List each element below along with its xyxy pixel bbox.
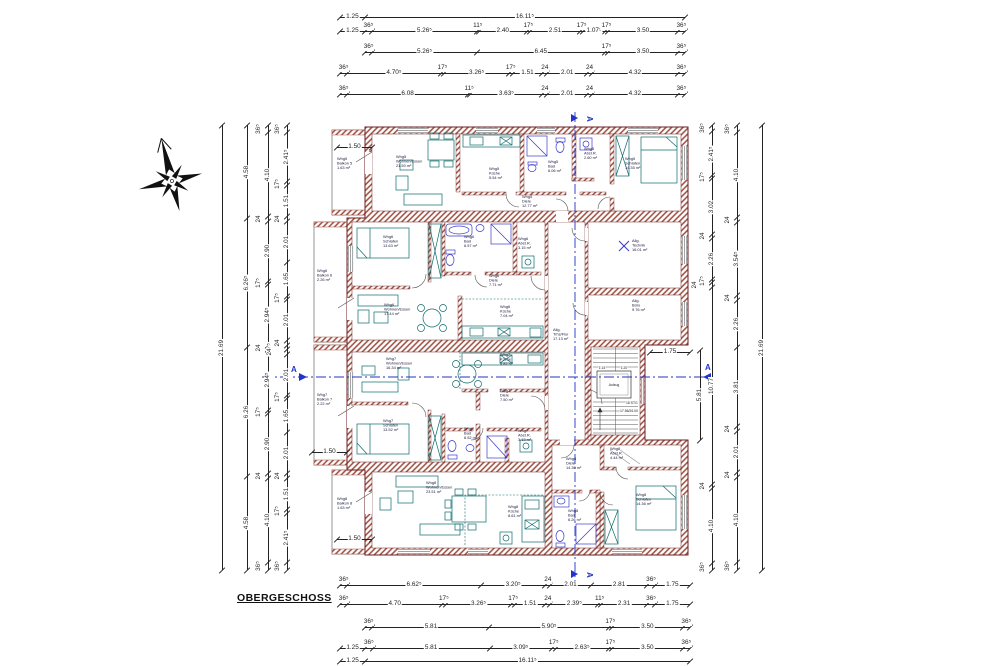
dimension-label: 17⁵ bbox=[274, 391, 282, 403]
dimension-label: 2.51 bbox=[548, 27, 562, 35]
dimension-label: 2.81 bbox=[612, 581, 626, 589]
dimension-label: 36⁵ bbox=[645, 595, 657, 603]
dimension-label: 36⁵ bbox=[680, 639, 692, 647]
dimension-line bbox=[712, 125, 713, 570]
dimension-label: 4.70⁵ bbox=[385, 69, 402, 77]
dimension-label: 36⁵ bbox=[255, 560, 263, 572]
dimension-label: 1.65 bbox=[283, 409, 291, 423]
dimension-label: 16.11⁵ bbox=[515, 13, 535, 21]
dimension-label: 2.01 bbox=[560, 69, 574, 77]
dimension-label: 36⁵ bbox=[338, 64, 350, 72]
dimension-label: 3.50 bbox=[636, 27, 650, 35]
dimension-label: 4.10 bbox=[708, 519, 716, 533]
dimension-label: 3.50 bbox=[640, 623, 654, 631]
dimension-label: 2.31 bbox=[617, 600, 631, 608]
dimension-chains: 1.2516.11⁵1.2536⁵5.26⁵11⁵2.4017⁵2.5117⁵1… bbox=[0, 0, 1000, 666]
dimension-label: 4.10 bbox=[733, 513, 741, 527]
dimension-label: 24 bbox=[274, 339, 282, 348]
dimension-label: 1.25 bbox=[345, 644, 359, 652]
dimension-label: 24 bbox=[699, 232, 707, 241]
dimension-label: 11⁵ bbox=[463, 85, 474, 93]
dimension-label: 4.32 bbox=[628, 90, 642, 98]
dimension-label: 24 bbox=[724, 471, 732, 480]
dimension-label: 3.50 bbox=[640, 644, 654, 652]
dimension-label: 11⁵ bbox=[472, 22, 483, 30]
dimension-label: 36⁵ bbox=[675, 22, 687, 30]
dimension-label: 1.51 bbox=[520, 69, 534, 77]
dimension-label: 36⁵ bbox=[699, 122, 707, 134]
dimension-label: 2.63⁵ bbox=[574, 644, 591, 652]
dimension-label: 3.09⁵ bbox=[512, 644, 529, 652]
dimension-label: 36⁵ bbox=[274, 123, 282, 135]
dimension-label: 24 bbox=[274, 472, 282, 481]
dimension-label: 2.26 bbox=[733, 317, 741, 331]
dimension-label: 2.01 bbox=[283, 235, 291, 249]
dimension-label: 36⁵ bbox=[363, 639, 375, 647]
dimension-label: 36⁵ bbox=[699, 561, 707, 573]
dimension-label: 2.01 bbox=[563, 581, 577, 589]
dimension-label: 4.10 bbox=[733, 168, 741, 182]
dimension-label: 6.26⁵ bbox=[243, 275, 251, 292]
dimension-label: 17⁵ bbox=[505, 64, 517, 72]
dimension-label: 17⁵ bbox=[604, 639, 616, 647]
dimension-label: 2.41⁵ bbox=[283, 149, 291, 166]
dimension-label: 17⁵ bbox=[699, 275, 707, 287]
dimension-label: 3.81 bbox=[733, 380, 741, 394]
dimension-label: 17⁵ bbox=[274, 292, 282, 304]
dimension-label: 17⁵ bbox=[522, 22, 534, 30]
dimension-label: 1.51 bbox=[283, 194, 291, 208]
dimension-label: 4.58 bbox=[243, 165, 251, 179]
dimension-label: 24 bbox=[585, 64, 594, 72]
dimension-label: 2.01 bbox=[283, 313, 291, 327]
dimension-label: 24 bbox=[699, 482, 707, 491]
dimension-label: 5.81 bbox=[424, 623, 438, 631]
dimension-label: 36⁵ bbox=[255, 123, 263, 135]
dimension-label: 2.41⁵ bbox=[283, 529, 291, 546]
dimension-label: 6.26 bbox=[243, 405, 251, 419]
dimension-label: 4.70 bbox=[387, 600, 401, 608]
dimension-label: 21.69 bbox=[758, 339, 766, 357]
dimension-label: 36⁵ bbox=[338, 576, 350, 584]
dimension-label: 2.41⁵ bbox=[708, 145, 716, 162]
dimension-label: 24 bbox=[724, 294, 732, 303]
dimension-label: 24 bbox=[540, 85, 549, 93]
dimension-label: 36⁵ bbox=[338, 595, 350, 603]
dimension-label: 17⁵ bbox=[255, 277, 263, 289]
dimension-label: 36⁵ bbox=[724, 560, 732, 572]
dimension-label: 24 bbox=[255, 471, 263, 480]
dimension-label: 4.32 bbox=[628, 69, 642, 77]
dimension-label: 24 bbox=[255, 215, 263, 224]
dimension-label: 1.51 bbox=[283, 487, 291, 501]
dimension-label: 5.26⁵ bbox=[416, 48, 433, 56]
dimension-label: 1.65 bbox=[283, 272, 291, 286]
dimension-label: 36⁵ bbox=[363, 43, 375, 51]
dimension-label: 36⁵ bbox=[675, 43, 687, 51]
dimension-label: 1.50 bbox=[322, 448, 336, 456]
dimension-label: 3.20⁵ bbox=[505, 581, 522, 589]
dimension-label: 2.01 bbox=[283, 446, 291, 460]
dimension-label: 1.75 bbox=[663, 348, 677, 356]
dimension-label: 24 bbox=[540, 64, 549, 72]
dimension-label: 21.69 bbox=[218, 339, 226, 357]
dimension-label: 36⁵ bbox=[363, 618, 375, 626]
dimension-label: 17⁵ bbox=[274, 505, 282, 517]
dimension-label: 3.63⁵ bbox=[498, 90, 515, 98]
dimension-label: 11⁵ bbox=[594, 595, 605, 603]
dimension-label: 24 bbox=[274, 214, 282, 223]
dimension-label: 17⁵ bbox=[274, 178, 282, 190]
dimension-label: 17⁵ bbox=[601, 43, 613, 51]
dimension-label: 5.81 bbox=[424, 644, 438, 652]
dimension-label: 4.58 bbox=[243, 516, 251, 530]
dimension-label: 1.51 bbox=[523, 600, 537, 608]
dimension-label: 4.10 bbox=[264, 513, 272, 527]
dimension-label: 36⁵ bbox=[724, 123, 732, 135]
dimension-label: 2.94⁵ bbox=[264, 372, 272, 389]
dimension-label: 17⁵ bbox=[507, 595, 519, 603]
dimension-label: 17⁵ bbox=[604, 618, 616, 626]
dimension-label: 3.02 bbox=[708, 199, 716, 213]
dimension-label: 2.39⁵ bbox=[566, 600, 583, 608]
dimension-label: 6.08 bbox=[400, 90, 414, 98]
dimension-label: 3.54⁵ bbox=[733, 250, 741, 267]
dimension-label: 2.90 bbox=[264, 244, 272, 258]
dimension-label: 24 bbox=[543, 576, 552, 584]
dimension-label: 2.01 bbox=[733, 445, 741, 459]
dimension-label: 2.01 bbox=[283, 368, 291, 382]
dimension-label: 17⁵ bbox=[438, 595, 450, 603]
dimension-line bbox=[340, 17, 685, 18]
dimension-label: 24 bbox=[543, 595, 552, 603]
dimension-label: 2.40 bbox=[496, 27, 510, 35]
dimension-label: 3.50 bbox=[636, 48, 650, 56]
dimension-label: 36⁵ bbox=[363, 22, 375, 30]
dimension-label: 3.26⁵ bbox=[468, 69, 485, 77]
dimension-label: 6.62⁵ bbox=[406, 581, 423, 589]
dimension-label: 24 bbox=[585, 85, 594, 93]
dimension-label: 1.25 bbox=[345, 657, 359, 665]
dimension-label: 17⁵ bbox=[601, 22, 613, 30]
dimension-label: 17⁵ bbox=[699, 171, 707, 183]
dimension-label: 24 bbox=[724, 215, 732, 224]
dimension-line bbox=[340, 661, 690, 662]
dimension-label: 2.90 bbox=[264, 436, 272, 450]
dimension-label: 24 bbox=[266, 347, 274, 356]
dimension-label: 17⁵ bbox=[548, 639, 560, 647]
dimension-label: 17⁵ bbox=[255, 406, 263, 418]
dimension-label: 1.75 bbox=[665, 581, 679, 589]
floorplan-drawing: Aufzug 1.14 1.20 18 STG 17.56/26.00 bbox=[0, 0, 1000, 666]
dimension-label: 36⁵ bbox=[675, 85, 687, 93]
dimension-label: 5.26⁵ bbox=[416, 27, 433, 35]
dimension-label: 24 bbox=[691, 281, 699, 290]
dimension-label: 2.26 bbox=[708, 252, 716, 266]
dimension-label: 1.25 bbox=[345, 27, 359, 35]
dimension-label: 2.01 bbox=[560, 90, 574, 98]
dimension-label: 36⁵ bbox=[274, 560, 282, 572]
dimension-label: 1.75 bbox=[665, 600, 679, 608]
dimension-line bbox=[340, 31, 685, 32]
dimension-label: 3.26⁵ bbox=[470, 600, 487, 608]
dimension-label: 36⁵ bbox=[675, 64, 687, 72]
dimension-label: 1.50 bbox=[347, 143, 361, 151]
dimension-label: 36⁵ bbox=[645, 576, 657, 584]
dimension-label: 17⁵ bbox=[437, 64, 449, 72]
dimension-label: 4.10 bbox=[264, 167, 272, 181]
dimension-label: 24 bbox=[724, 424, 732, 433]
dimension-label: 6.45 bbox=[534, 48, 548, 56]
dimension-label: 5.81 bbox=[696, 388, 704, 402]
dimension-label: 16.11⁵ bbox=[518, 657, 538, 665]
dimension-label: 36⁵ bbox=[680, 618, 692, 626]
dimension-label: 2.94⁵ bbox=[264, 306, 272, 323]
page-title: OBERGESCHOSS bbox=[237, 592, 332, 604]
dimension-label: 36⁵ bbox=[338, 85, 350, 93]
dimension-label: 10.77 bbox=[708, 377, 716, 395]
dimension-label: 5.90⁵ bbox=[540, 623, 557, 631]
dimension-label: 24 bbox=[255, 343, 263, 352]
dimension-label: 1.50 bbox=[347, 535, 361, 543]
dimension-label: 1.25 bbox=[345, 13, 359, 21]
